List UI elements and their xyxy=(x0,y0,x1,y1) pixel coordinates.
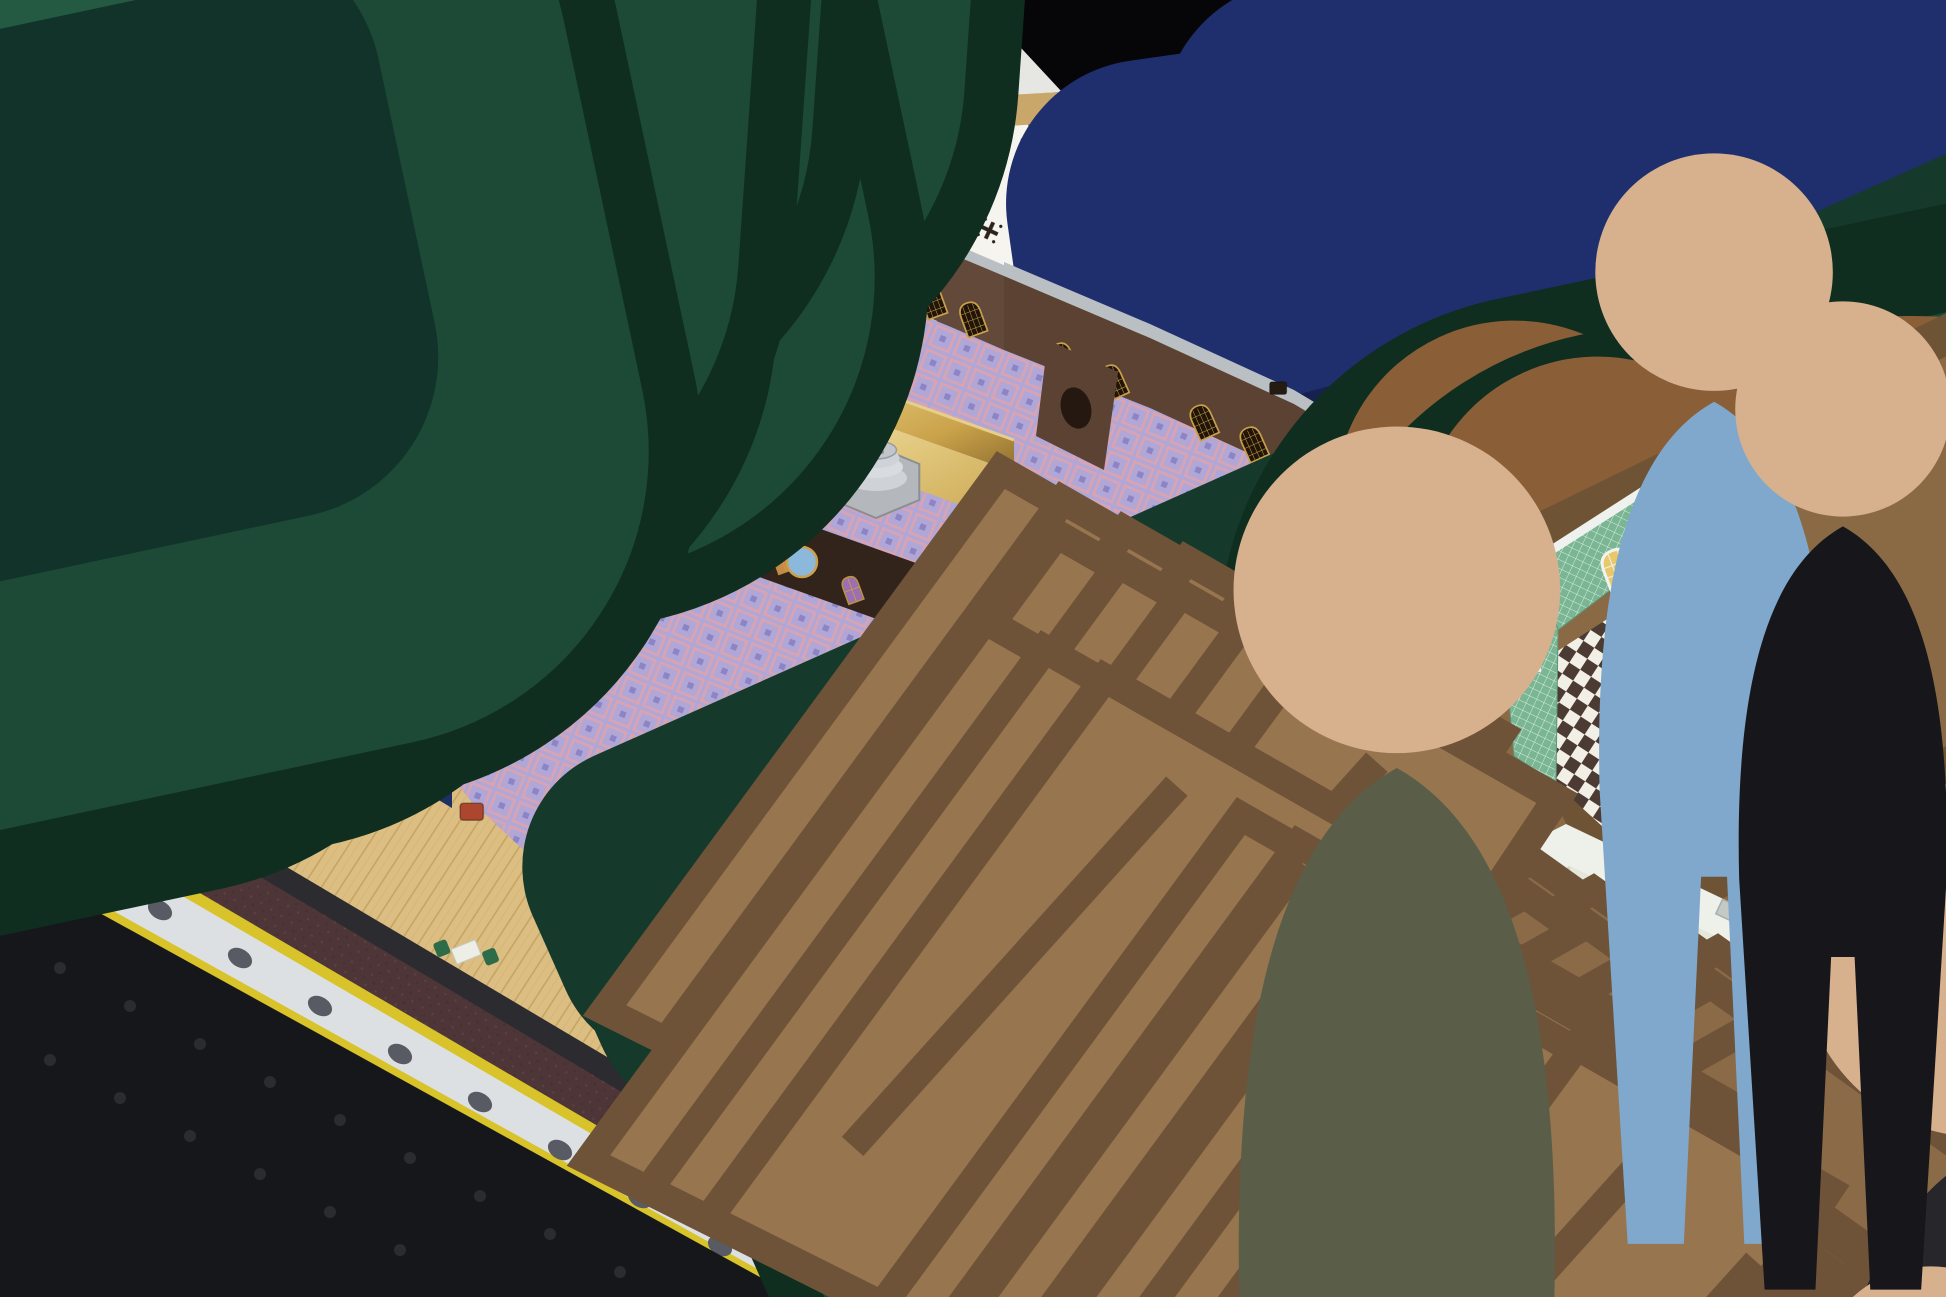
hull-porthole xyxy=(394,1244,406,1256)
hull-porthole xyxy=(324,1206,336,1218)
hull-porthole xyxy=(124,1000,136,1012)
hull-porthole xyxy=(474,1190,486,1202)
hull-porthole xyxy=(114,1092,126,1104)
hull-porthole xyxy=(254,1168,266,1180)
hull-porthole xyxy=(184,1130,196,1142)
hull-porthole xyxy=(54,962,66,974)
scene-svg xyxy=(0,0,1946,1297)
model-ship-photo xyxy=(0,0,1946,1297)
hull-porthole xyxy=(544,1228,556,1240)
hull-porthole xyxy=(614,1266,626,1278)
hull-porthole xyxy=(194,1038,206,1050)
hull-porthole xyxy=(44,1054,56,1066)
hull-porthole xyxy=(334,1114,346,1126)
hull-porthole xyxy=(264,1076,276,1088)
hull-porthole xyxy=(404,1152,416,1164)
